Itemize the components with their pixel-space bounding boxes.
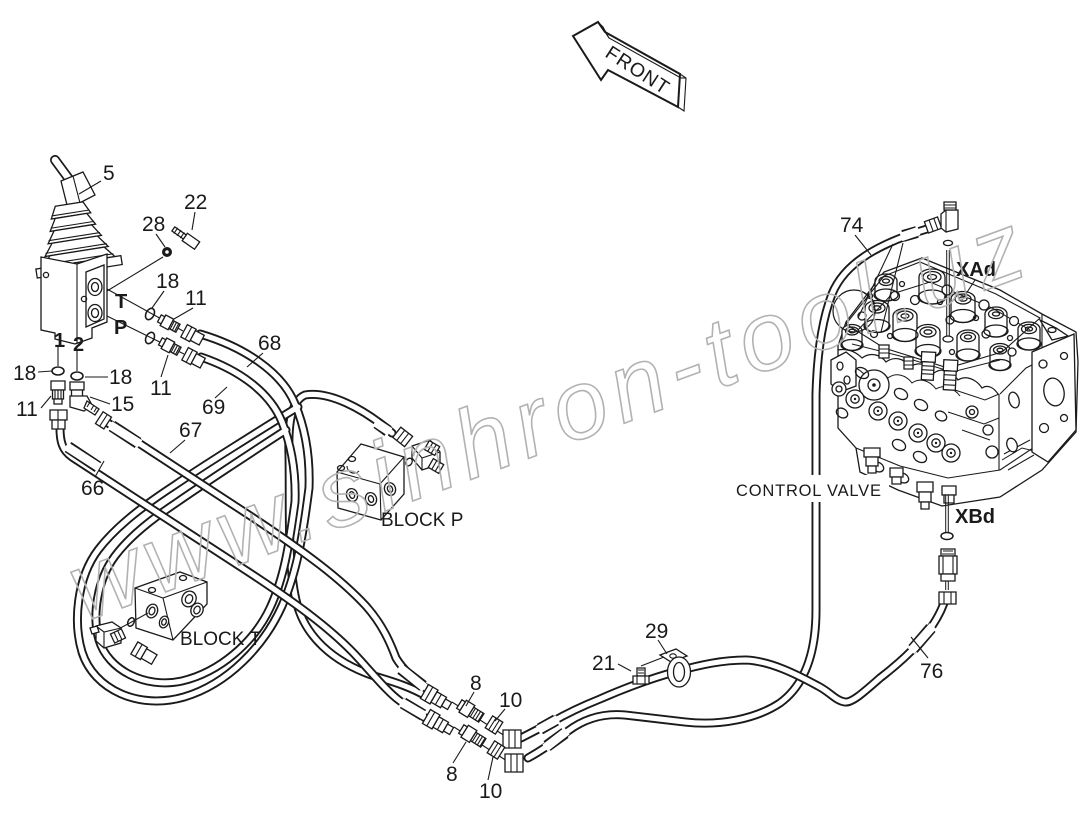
svg-text:XBd: XBd — [955, 506, 995, 528]
svg-text:11: 11 — [150, 377, 172, 400]
svg-text:68: 68 — [258, 332, 281, 355]
svg-text:18: 18 — [109, 366, 132, 389]
svg-text:2: 2 — [73, 334, 84, 356]
svg-text:8: 8 — [470, 672, 482, 695]
svg-text:10: 10 — [499, 689, 522, 712]
svg-text:22: 22 — [184, 191, 207, 214]
svg-text:18: 18 — [13, 362, 36, 385]
svg-text:5: 5 — [103, 162, 115, 185]
svg-text:28: 28 — [142, 213, 165, 236]
svg-text:T: T — [115, 291, 127, 313]
svg-text:10: 10 — [479, 780, 502, 803]
svg-text:CONTROL VALVE: CONTROL VALVE — [736, 482, 882, 500]
svg-text:15: 15 — [111, 393, 134, 416]
svg-text:1: 1 — [54, 330, 65, 352]
svg-text:11: 11 — [185, 287, 207, 310]
svg-text:76: 76 — [920, 660, 943, 683]
svg-text:P: P — [114, 317, 127, 339]
svg-text:18: 18 — [156, 270, 179, 293]
svg-text:21: 21 — [592, 652, 615, 675]
svg-text:69: 69 — [202, 396, 225, 419]
svg-text:11: 11 — [16, 398, 38, 421]
svg-text:67: 67 — [179, 419, 202, 442]
svg-text:29: 29 — [645, 620, 668, 643]
svg-text:74: 74 — [840, 214, 864, 237]
svg-text:8: 8 — [446, 763, 458, 786]
svg-text:66: 66 — [81, 477, 104, 500]
svg-text:BLOCK T: BLOCK T — [180, 629, 261, 650]
